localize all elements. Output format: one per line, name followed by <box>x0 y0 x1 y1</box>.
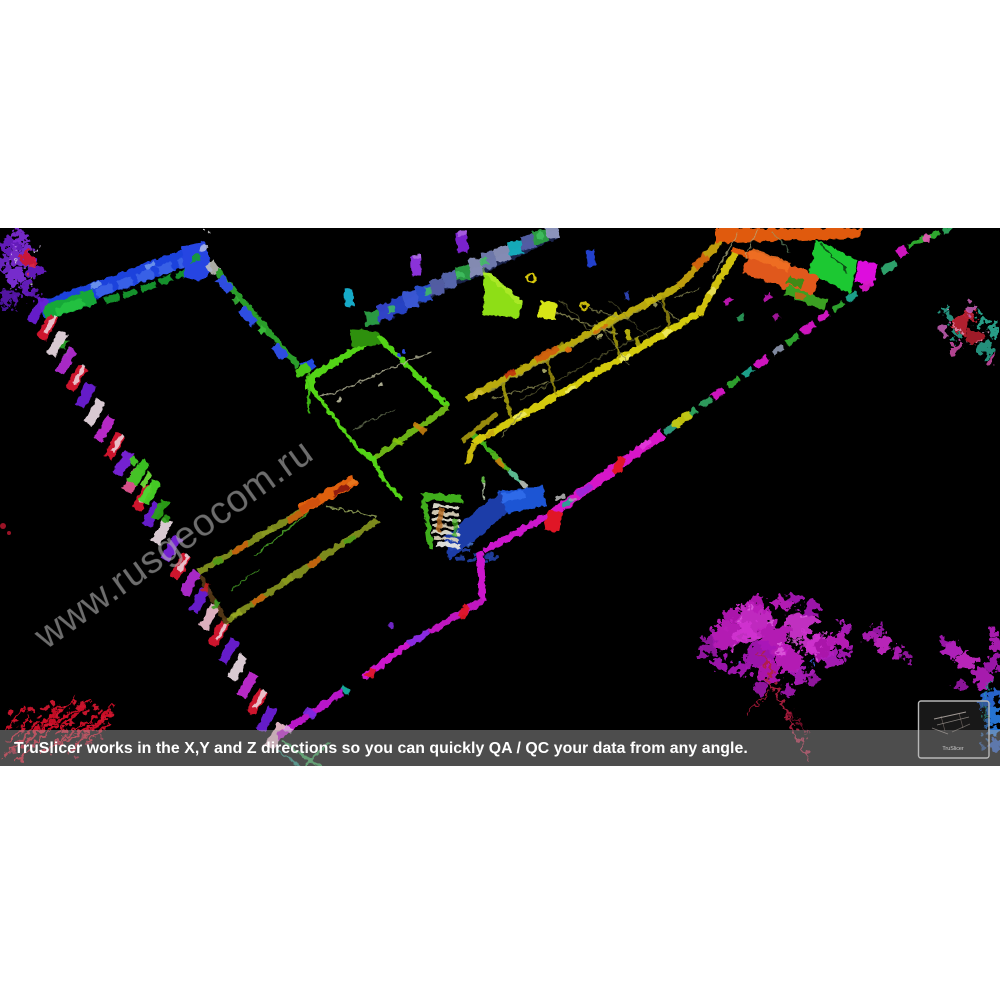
svg-text:TruSlicer works in the X,Y and: TruSlicer works in the X,Y and Z directi… <box>14 740 748 757</box>
svg-text:TruSlicer: TruSlicer <box>942 746 964 752</box>
